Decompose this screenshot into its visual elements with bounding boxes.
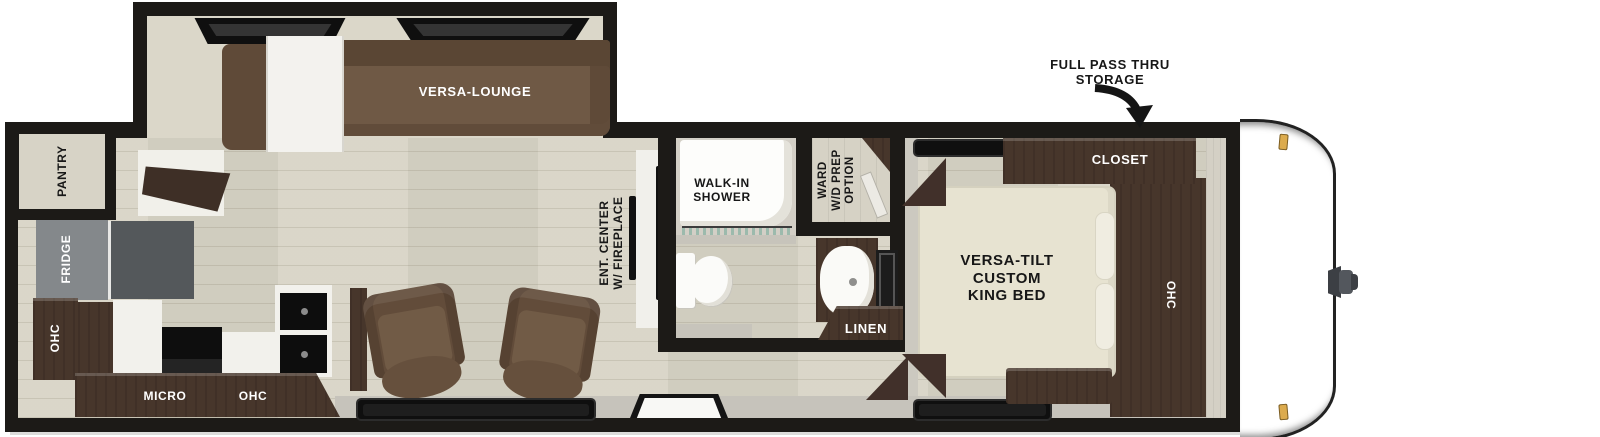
slideout-wall-top: [133, 2, 617, 17]
marker-light-top: [1278, 134, 1288, 151]
stove: [162, 327, 222, 377]
shower-glass: [682, 226, 792, 235]
shower-threshold: [676, 235, 796, 244]
drawer-lower-knob: [301, 351, 308, 358]
sink-basin: [820, 246, 874, 316]
slideout-window-1-glass: [206, 24, 334, 36]
versa-lounge-label: VERSA-LOUNGE: [390, 84, 560, 99]
kitchen-corner-cabinet: [78, 302, 113, 377]
walk-in-shower-label: WALK-IN SHOWER: [672, 176, 772, 204]
linen-label: LINEN: [832, 321, 900, 336]
marker-light-bottom: [1278, 404, 1288, 421]
toilet-bowl: [690, 256, 732, 306]
bed-pillow-2: [1095, 283, 1115, 350]
hitch: [1328, 264, 1358, 300]
bath-threshold: [676, 324, 752, 338]
living-bottom-window: [356, 398, 596, 421]
king-bed-label: VERSA-TILT CUSTOM KING BED: [926, 252, 1088, 305]
front-cap: [1240, 119, 1336, 437]
swivel-chair-2: [494, 285, 602, 410]
floorplan-canvas: VERSA-LOUNGE PANTRY FRIDGE OHC MICRO OHC…: [0, 0, 1600, 437]
storage-arrow-icon: [1085, 84, 1157, 130]
kitchen-lower-counter: [75, 373, 340, 417]
front-bulkhead: [1226, 122, 1240, 432]
pantry-label: PANTRY: [55, 131, 69, 211]
bed-pillow-1: [1095, 212, 1115, 280]
ward-bottom-wall: [796, 222, 905, 236]
bath-wall-left: [658, 138, 676, 352]
slideout-window-2-glass: [410, 24, 576, 36]
swivel-chair-1: [361, 281, 471, 407]
slideout-wall-left: [133, 2, 147, 138]
ohc-left-label: OHC: [48, 317, 62, 359]
fridge-door: [108, 221, 194, 299]
lounge-table: [266, 36, 344, 152]
kitchen-counter-white-2: [222, 332, 277, 377]
fridge-label: FRIDGE: [59, 226, 73, 292]
closet-label: CLOSET: [1070, 152, 1170, 167]
ohc-upper-label: OHC: [223, 389, 283, 403]
micro-label: MICRO: [130, 389, 200, 403]
ohc-bedroom-cabinet: [1110, 178, 1206, 417]
bottom-wall: [5, 418, 1240, 432]
shower-ward-divider: [796, 138, 812, 235]
ohc-bedroom-label: OHC: [1164, 274, 1178, 316]
ent-center-label: ENT. CENTER W/ FIREPLACE: [597, 187, 629, 299]
fireplace-bar: [629, 196, 636, 280]
entry-door: [630, 394, 728, 418]
front-wall-strip: [1206, 138, 1226, 418]
trailer-underline: [10, 432, 1240, 435]
bed-foot-bench: [1006, 368, 1112, 404]
bath-wall-bottom: [658, 338, 905, 352]
sink-faucet: [849, 278, 857, 286]
ward-label: WARD W/D PREP OPTION: [817, 140, 861, 220]
drawer-upper-knob: [301, 308, 308, 315]
kitchen-counter-white-1: [113, 300, 162, 377]
